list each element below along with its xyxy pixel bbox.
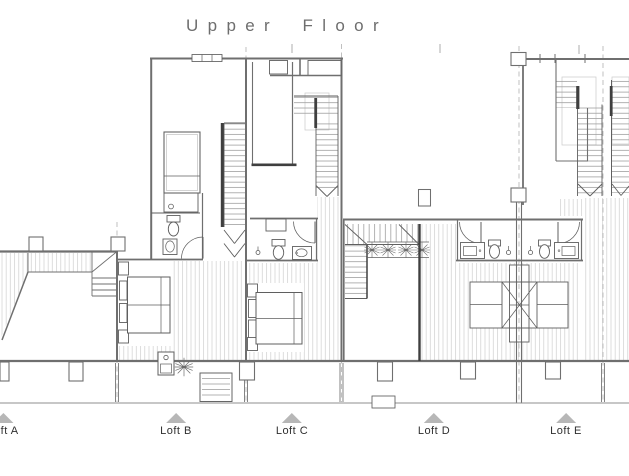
triangle-marker-icon [282, 413, 302, 423]
window-icon [192, 55, 222, 62]
door-swing-icon [460, 222, 482, 244]
triangle-marker-icon [166, 413, 186, 423]
toilet-icon [272, 240, 285, 260]
small-plant-icon [256, 247, 260, 255]
grid-ticks [292, 44, 579, 54]
loft-c-marker: Loft C [276, 413, 308, 437]
small-plant-icon [506, 246, 510, 255]
loft-d-label: Loft D [418, 425, 450, 437]
loft-b-label: Loft B [160, 425, 192, 437]
loft-a-marker: Loft A [0, 413, 19, 437]
loft-d-marker: Loft D [418, 413, 450, 437]
chimney [419, 190, 431, 207]
vanity-icon [461, 243, 485, 259]
loft-e-marker: Loft E [550, 413, 582, 437]
triangle-marker-icon [556, 413, 576, 423]
floor-plan-sheet: Upper Floor Loft A Loft B Loft C Loft D … [0, 0, 629, 476]
balcony-kitchenette [158, 352, 174, 375]
toilet-icon [539, 240, 551, 258]
loft-c-label: Loft C [276, 425, 308, 437]
sink-icon [163, 239, 177, 255]
deck-hatching [0, 197, 629, 360]
sink-icon [293, 247, 312, 260]
door-swing-icon [294, 222, 316, 244]
loft-a-label: Loft A [0, 425, 19, 437]
loft-b-marker: Loft B [160, 413, 192, 437]
vanity-icon [555, 243, 579, 259]
drawing-title: Upper Floor [186, 16, 388, 36]
toilet-icon [167, 216, 180, 237]
door-swing-icon [558, 222, 580, 244]
lower-entry [372, 396, 395, 408]
loft-e-label: Loft E [550, 425, 582, 437]
door-swing-icon [182, 237, 204, 259]
triangle-marker-icon [424, 413, 444, 423]
lower-entry-stair [200, 373, 232, 402]
upper-floor-plan-drawing [0, 0, 629, 476]
bed [248, 284, 303, 351]
triangle-marker-icon [0, 413, 13, 423]
small-plant-icon [528, 246, 532, 255]
toilet-icon [489, 240, 501, 258]
closet [164, 132, 200, 193]
